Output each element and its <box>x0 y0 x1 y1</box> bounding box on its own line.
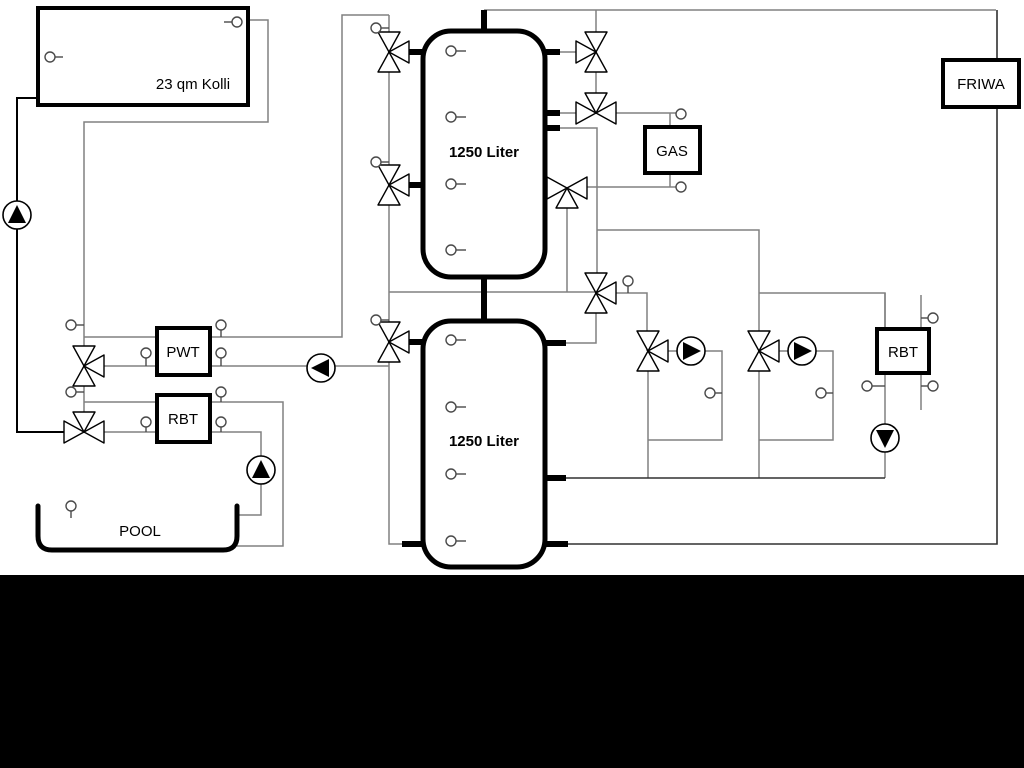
three-way-valve-distribution <box>585 273 616 313</box>
temp-sensor <box>705 388 722 398</box>
three-way-valve-pwt <box>73 346 104 386</box>
temp-sensor <box>921 381 938 391</box>
temp-sensor <box>623 276 633 293</box>
pipes-black <box>17 98 64 432</box>
three-way-valve-tank-mid-left <box>378 165 409 205</box>
temp-sensor <box>216 417 226 432</box>
temp-sensor <box>141 348 151 366</box>
heating-circuit-2-pump <box>788 337 816 365</box>
temp-sensor <box>816 388 833 398</box>
three-way-valve-gas-flow <box>576 93 616 124</box>
temp-sensor <box>862 381 885 391</box>
temp-sensor <box>216 348 226 366</box>
three-way-valve-rbt-left <box>64 412 104 443</box>
three-way-valve-tank-top-right <box>576 32 607 72</box>
pool-label: POOL <box>119 523 161 540</box>
rbt-left-label: RBT <box>168 411 198 428</box>
temp-sensor <box>676 182 686 192</box>
three-way-valve-circuit-1 <box>637 331 668 371</box>
tank-lower-label: 1250 Liter <box>449 433 519 450</box>
temp-sensor <box>66 320 84 330</box>
temp-sensor <box>66 387 84 397</box>
rbt-return-pump <box>871 424 899 452</box>
pwt-circuit-pump <box>307 354 335 382</box>
collector-label: 23 qm Kolli <box>156 76 230 93</box>
temp-sensor <box>216 320 226 337</box>
schematic-canvas: 23 qm Kolli 1250 Liter 1250 Liter PWT RB… <box>0 0 1024 768</box>
pool-feed-pump <box>247 456 275 484</box>
gas-label: GAS <box>656 143 688 160</box>
three-way-valve-tank-top-left <box>378 32 409 72</box>
temp-sensor <box>921 313 938 323</box>
tank-upper-label: 1250 Liter <box>449 144 519 161</box>
three-way-valve-tank-lower-left <box>378 322 409 362</box>
pwt-label: PWT <box>166 344 199 361</box>
solar-pump <box>3 201 31 229</box>
schematic-svg: 23 qm Kolli 1250 Liter 1250 Liter PWT RB… <box>0 0 1024 768</box>
temp-sensor <box>141 417 151 432</box>
friwa-label: FRIWA <box>957 76 1005 93</box>
rbt-right-label: RBT <box>888 344 918 361</box>
temp-sensor <box>216 387 226 402</box>
bottom-black-bar <box>0 575 1024 768</box>
temp-sensor <box>676 109 686 119</box>
heating-circuit-1-pump <box>677 337 705 365</box>
temp-sensor <box>66 501 76 518</box>
three-way-valve-circuit-2 <box>748 331 779 371</box>
three-way-valve-gas-return <box>547 177 587 208</box>
